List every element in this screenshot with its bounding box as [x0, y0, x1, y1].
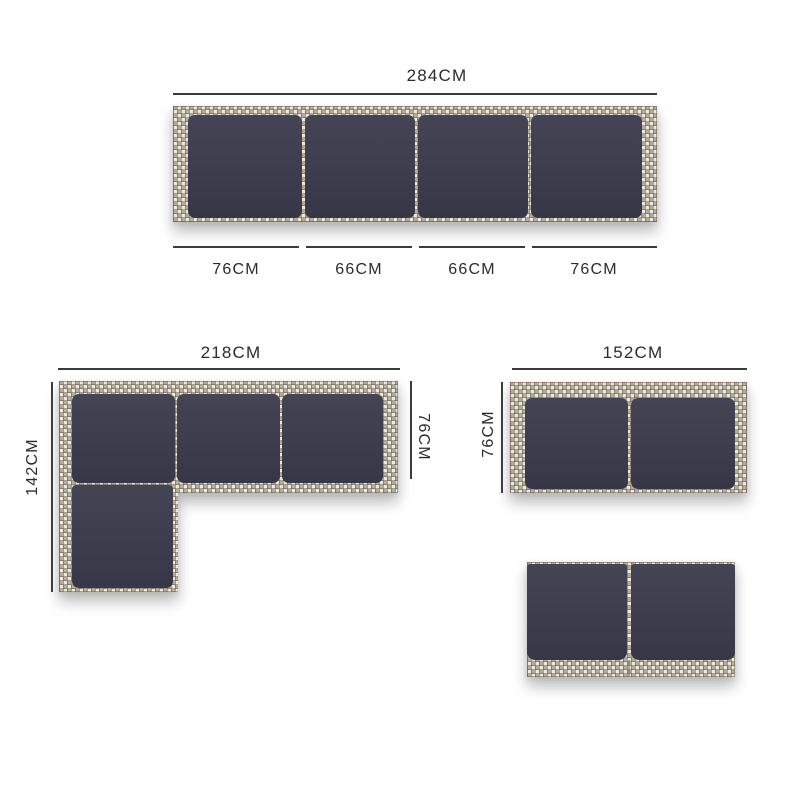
dimension-line-2seat-width: [512, 368, 747, 370]
dimension-line-seat-2: [306, 246, 412, 248]
dimension-label-2seat-depth: 76CM: [480, 410, 498, 457]
furniture-dimension-diagram: 284CM 76CM 66CM 66CM 76CM 218CM 142CM 76…: [0, 0, 800, 800]
seat-cushion: [177, 394, 280, 483]
corner-sofa-top-view: [59, 381, 398, 592]
seat-cushion: [305, 115, 415, 218]
seat-cushion: [282, 394, 383, 483]
dimension-line-corner-height: [51, 382, 53, 592]
dimension-line-seat-1: [173, 246, 299, 248]
dimension-label-2seat-width: 152CM: [603, 343, 664, 363]
seat-cushion: [72, 394, 175, 483]
dimension-label-total-width-4seat: 284CM: [407, 66, 468, 86]
dimension-line-seat-4: [532, 246, 657, 248]
seat-cushion: [631, 564, 735, 660]
dimension-line-seat-3: [419, 246, 525, 248]
seat-cushion: [631, 398, 735, 489]
sofa-2-seater-top-view: [510, 382, 747, 493]
seat-cushion: [188, 115, 302, 218]
dimension-label-seat-2: 66CM: [335, 261, 382, 279]
dimension-label-seat-1: 76CM: [212, 261, 259, 279]
seat-cushion: [527, 564, 627, 660]
base-seam: [628, 660, 630, 677]
dimension-line-2seat-depth: [501, 382, 503, 493]
dimension-label-corner-depth: 76CM: [414, 413, 432, 460]
dimension-line-total-width-4seat: [173, 93, 657, 95]
seat-cushion: [525, 398, 628, 489]
dimension-line-corner-width: [58, 368, 400, 370]
sofa-4-seater-top-view: [173, 106, 657, 222]
seat-cushion: [418, 115, 528, 218]
dimension-label-corner-height: 142CM: [24, 438, 42, 496]
dimension-line-corner-depth: [410, 381, 412, 479]
seat-cushion: [531, 115, 642, 218]
dimension-label-seat-4: 76CM: [570, 261, 617, 279]
chaise-cushion: [72, 485, 173, 588]
sofa-2-seater-front-view: [527, 562, 735, 677]
dimension-label-seat-3: 66CM: [448, 261, 495, 279]
dimension-label-corner-width: 218CM: [201, 343, 262, 363]
